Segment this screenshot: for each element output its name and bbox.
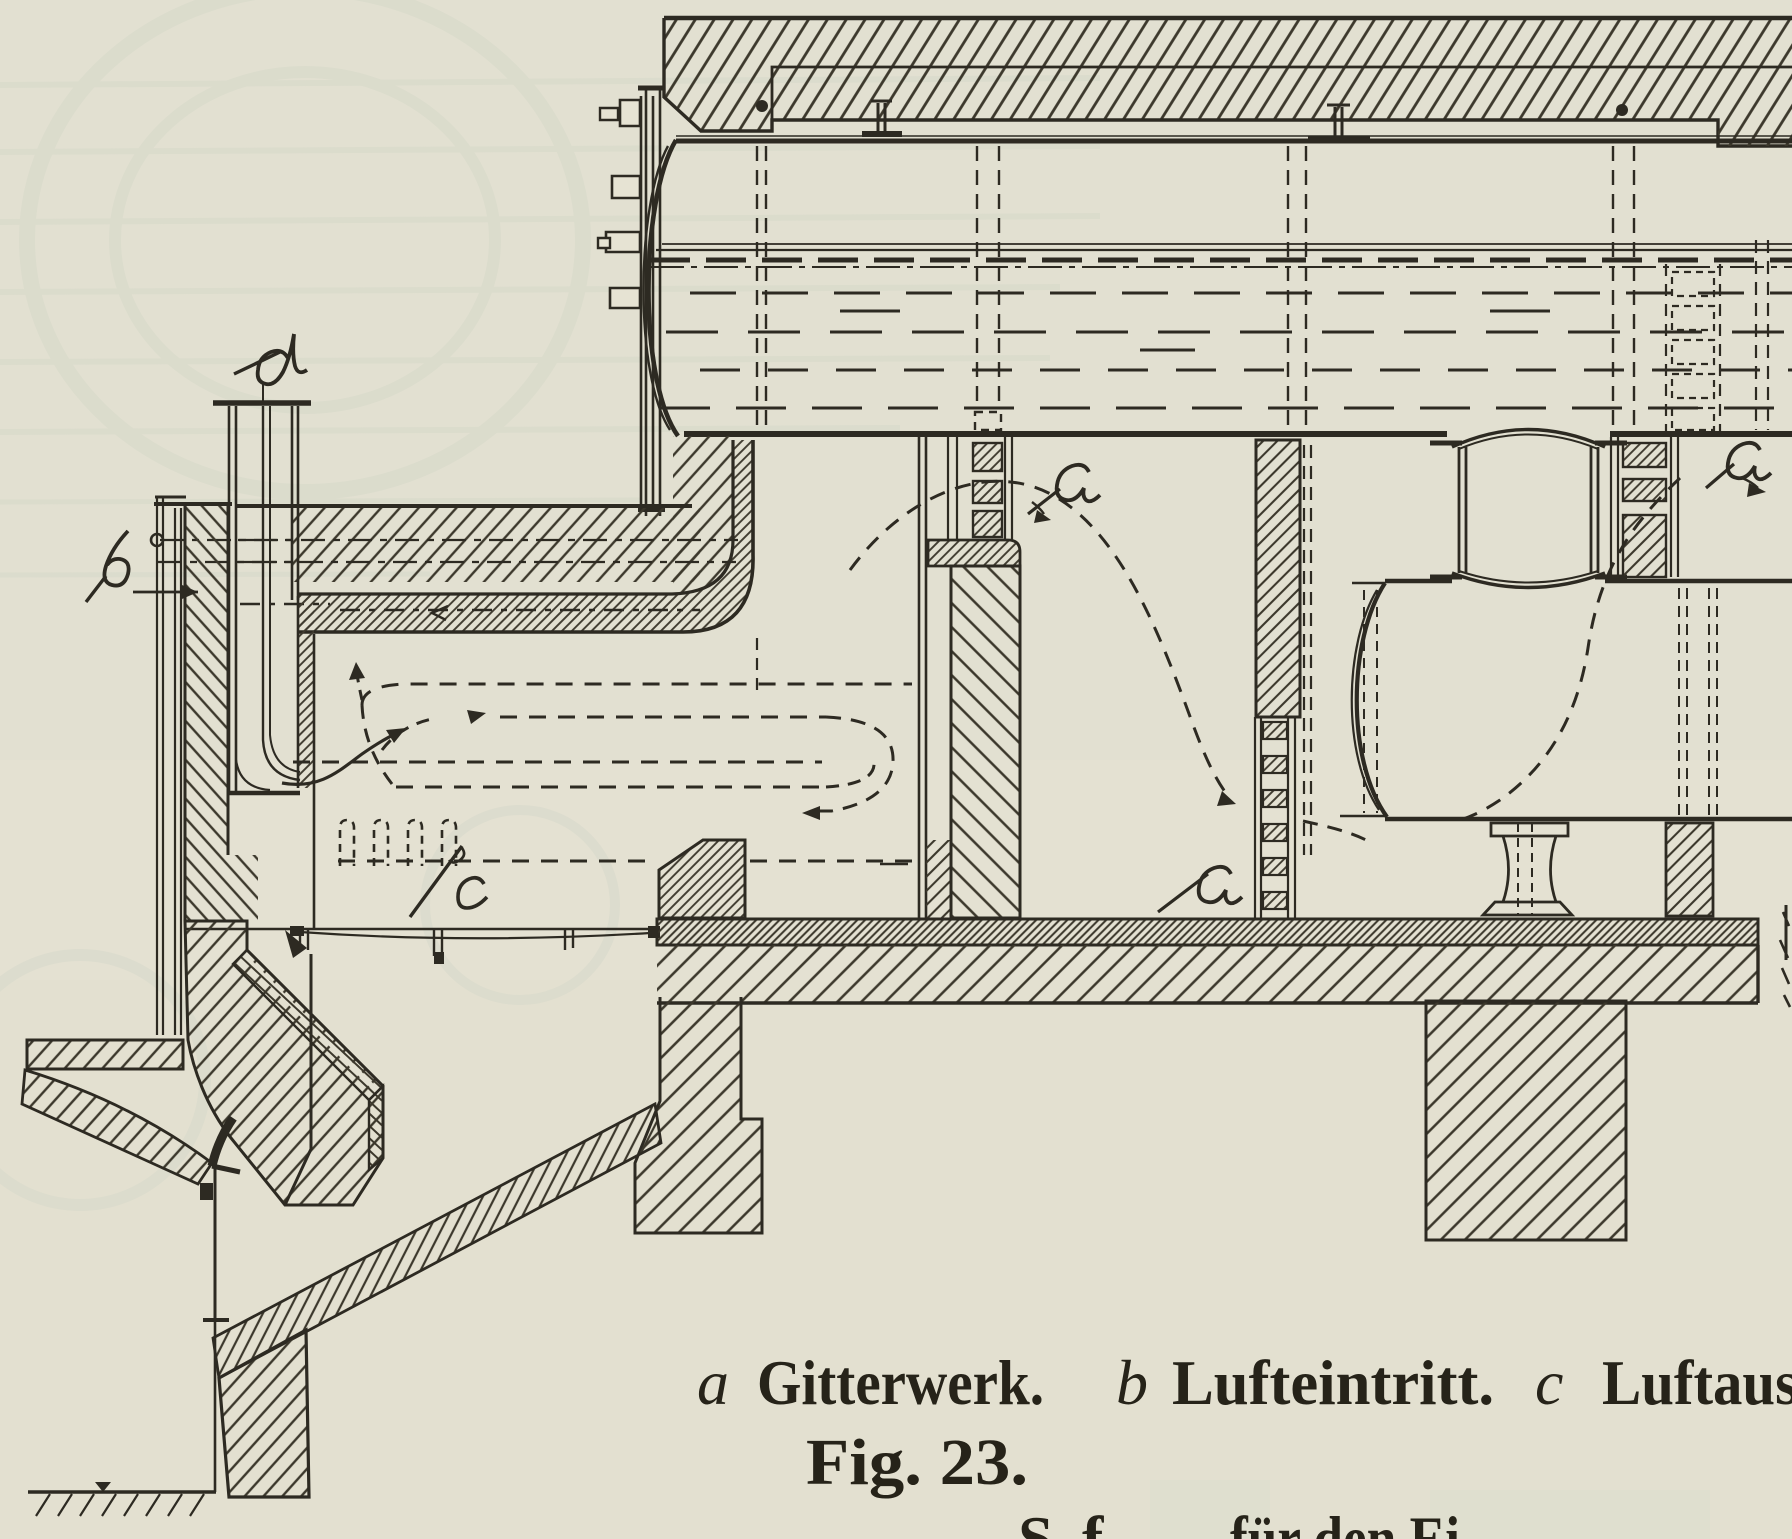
svg-text:a: a bbox=[697, 1347, 729, 1418]
svg-text:für den Ei: für den Ei bbox=[1230, 1503, 1460, 1539]
svg-text:Lufteintritt.: Lufteintritt. bbox=[1172, 1347, 1494, 1418]
svg-text:Fig. 23.: Fig. 23. bbox=[806, 1426, 1028, 1499]
svg-text:c: c bbox=[1535, 1347, 1563, 1418]
svg-text:f: f bbox=[1082, 1503, 1104, 1539]
svg-text:Gitterwerk.: Gitterwerk. bbox=[757, 1347, 1044, 1418]
svg-text:Luftaus: Luftaus bbox=[1602, 1347, 1792, 1418]
svg-text:b: b bbox=[1116, 1347, 1148, 1418]
svg-text:S: S bbox=[1018, 1503, 1054, 1539]
